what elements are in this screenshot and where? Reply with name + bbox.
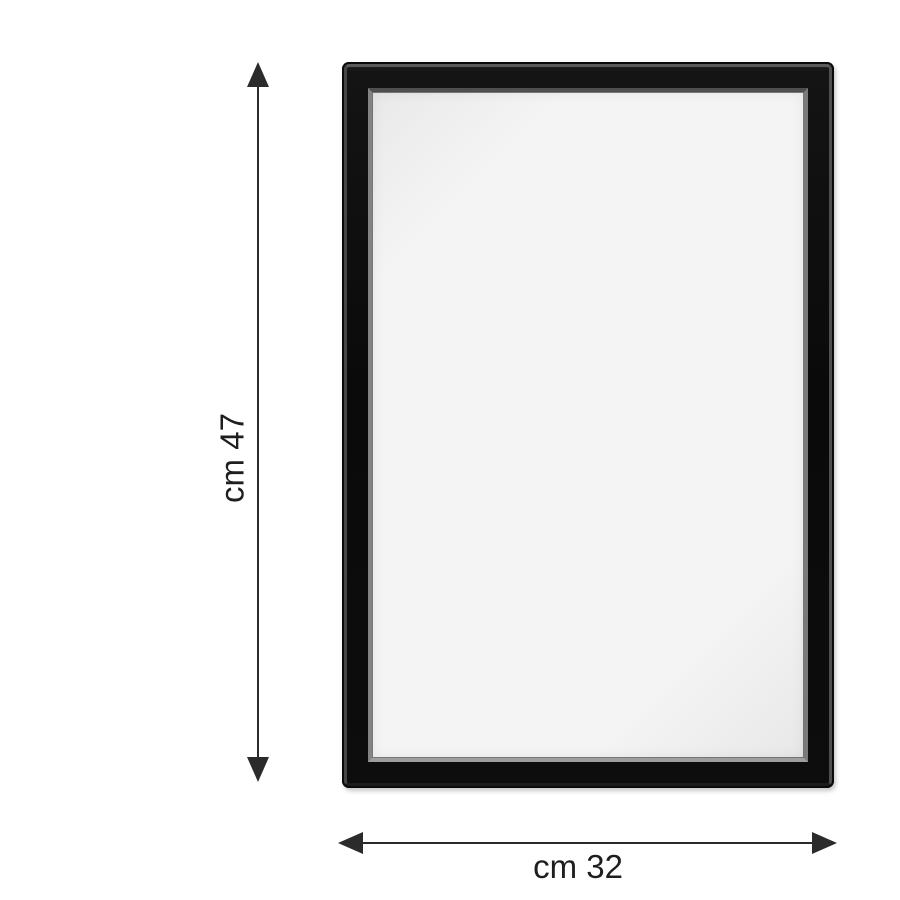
- product-dimension-diagram: cm 47 cm 32: [0, 0, 900, 900]
- arrow-down-icon: [247, 757, 269, 782]
- arrow-up-icon: [247, 62, 269, 87]
- width-dimension-label: cm 32: [533, 850, 623, 883]
- height-dimension-line: [257, 66, 259, 778]
- width-dimension-line: [342, 842, 833, 844]
- arrow-right-icon: [812, 832, 837, 854]
- arrow-left-icon: [338, 832, 363, 854]
- height-dimension-label: cm 47: [216, 413, 249, 503]
- picture-frame: [342, 62, 834, 788]
- frame-opening: [368, 88, 808, 762]
